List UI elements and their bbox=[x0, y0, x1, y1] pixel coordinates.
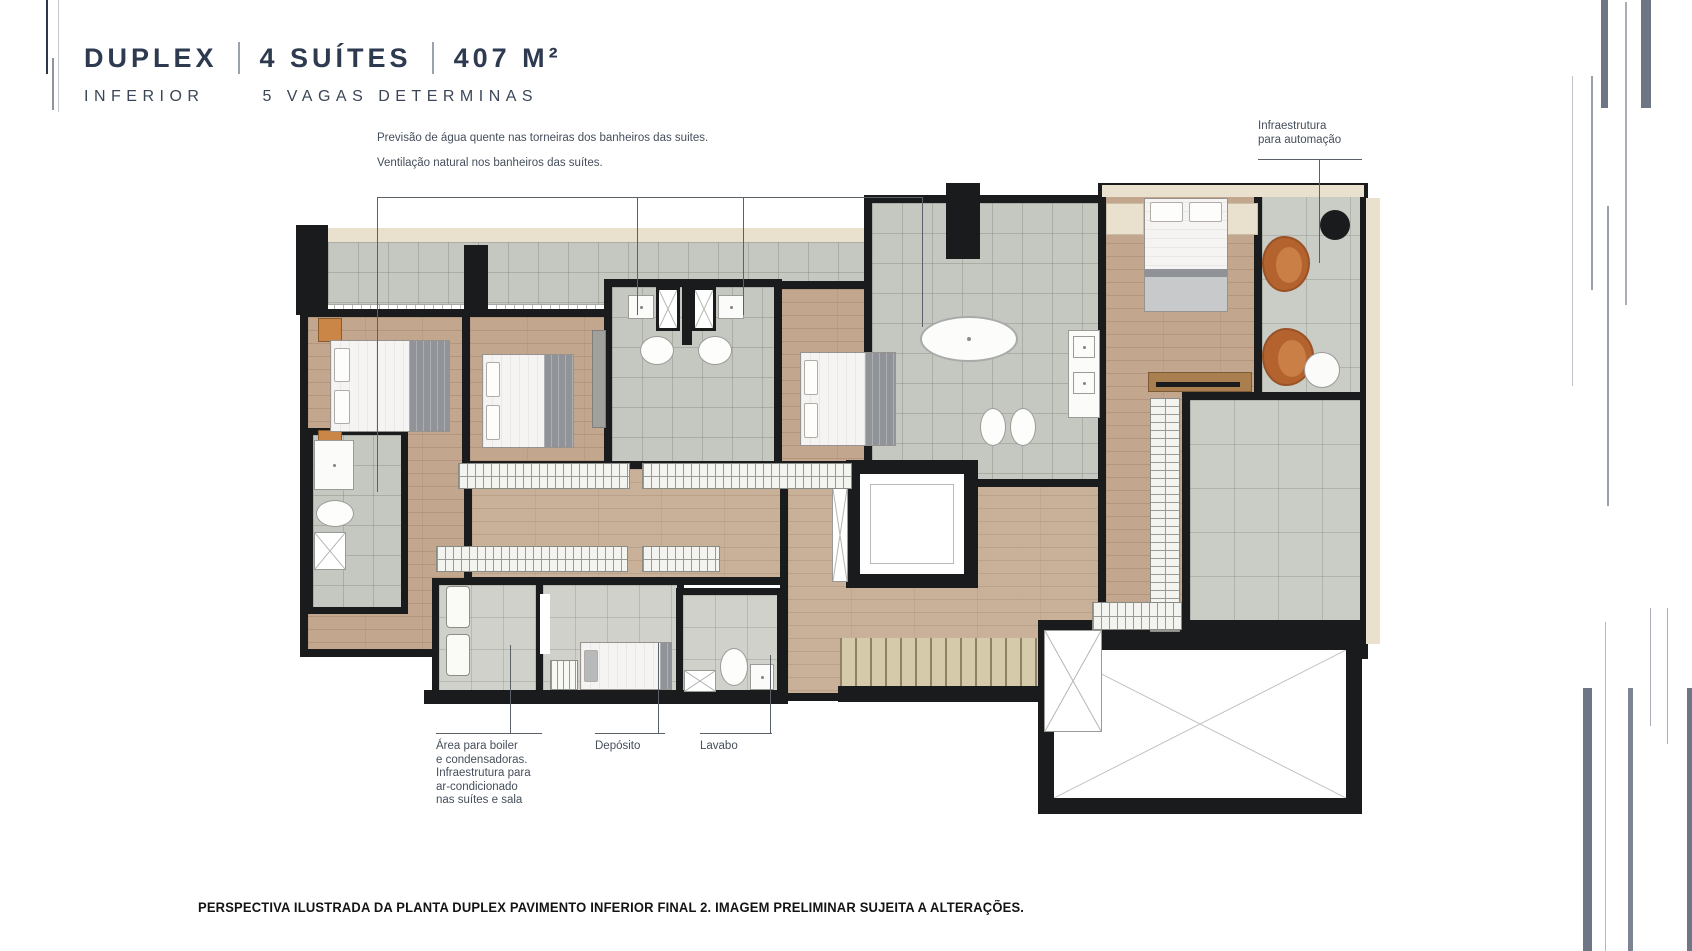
desk bbox=[592, 330, 606, 428]
toilet bbox=[720, 648, 748, 686]
right-accent-bar bbox=[1650, 608, 1651, 726]
callout-bracket-top bbox=[377, 197, 923, 198]
bed-blanket bbox=[544, 355, 573, 447]
annotation-boiler-line: Infraestrutura para bbox=[436, 767, 531, 781]
closet bbox=[1150, 398, 1180, 632]
bathroom-divider-wall bbox=[682, 279, 692, 345]
callout-underline bbox=[700, 733, 772, 734]
callout-line bbox=[377, 197, 378, 492]
door-gap bbox=[540, 594, 550, 654]
bathroom-sink bbox=[314, 440, 354, 490]
bed-blanket bbox=[660, 643, 671, 689]
annotation-lavabo: Lavabo bbox=[700, 740, 738, 752]
shower bbox=[314, 532, 346, 570]
callout-line bbox=[770, 655, 771, 733]
annotation-automation: Infraestrutura para automação bbox=[1258, 120, 1341, 147]
armchair-seat bbox=[1276, 247, 1302, 283]
round-table-white bbox=[1304, 352, 1340, 388]
bed-blanket bbox=[865, 353, 895, 445]
right-accent-bar bbox=[1625, 2, 1627, 305]
wall-stairs-bottom bbox=[838, 686, 1040, 702]
armchair-seat bbox=[1278, 340, 1306, 377]
left-accent-bar-2 bbox=[52, 58, 54, 110]
right-accent-bar bbox=[1687, 688, 1692, 951]
callout-line bbox=[510, 645, 511, 733]
bed-pillow bbox=[804, 360, 818, 395]
cross-icon bbox=[1045, 631, 1101, 731]
bathroom-sink bbox=[628, 295, 654, 319]
right-accent-bar bbox=[1667, 608, 1668, 744]
title-suites: 4 SUÍTES bbox=[260, 43, 412, 74]
annotation-deposito: Depósito bbox=[595, 740, 640, 752]
subtitle-parking: 5 VAGAS DETERMINAS bbox=[262, 88, 538, 106]
right-accent-bar bbox=[1572, 76, 1573, 386]
right-accent-bar bbox=[1601, 0, 1608, 108]
elevator-counterweight bbox=[832, 488, 848, 582]
annotation-boiler-line: e condensadoras. bbox=[436, 754, 531, 768]
round-table-black bbox=[1320, 210, 1350, 240]
bed-pillow bbox=[486, 362, 500, 397]
callout-line bbox=[743, 197, 744, 315]
bed-suite-3 bbox=[800, 352, 896, 446]
callout-underline bbox=[595, 733, 665, 734]
terrace-edge-right bbox=[1366, 198, 1380, 644]
annotation-automation-line1: Infraestrutura bbox=[1258, 120, 1341, 134]
bed-master bbox=[1144, 198, 1228, 312]
terrace-edge-top bbox=[1102, 185, 1364, 197]
bathroom-sink bbox=[1073, 336, 1095, 358]
bed-throw bbox=[1145, 269, 1227, 277]
elevator-cab-outline bbox=[870, 484, 954, 564]
staircase bbox=[840, 638, 1038, 686]
annotation-boiler-line: nas suítes e sala bbox=[436, 794, 531, 808]
cross-icon bbox=[659, 290, 677, 328]
bed-pillow bbox=[804, 403, 818, 438]
tv bbox=[1156, 382, 1240, 387]
toilet bbox=[698, 336, 732, 365]
bathtub bbox=[920, 316, 1018, 362]
right-accent-bar bbox=[1607, 206, 1609, 506]
left-accent-bar-1 bbox=[46, 0, 48, 74]
title-area: 407 M² bbox=[454, 43, 562, 74]
service-shaft bbox=[1044, 630, 1102, 732]
callout-underline bbox=[436, 733, 542, 734]
title-divider bbox=[432, 42, 434, 74]
bed-suite-1 bbox=[330, 340, 450, 432]
bed-pillow bbox=[334, 390, 350, 424]
cross-icon bbox=[695, 290, 713, 328]
shower bbox=[656, 287, 680, 331]
headboard-shelf bbox=[1226, 203, 1258, 235]
shower bbox=[692, 287, 716, 331]
shower bbox=[684, 670, 716, 692]
subtitle-floor: INFERIOR bbox=[84, 88, 204, 106]
annotation-hot-water: Previsão de água quente nas torneiras do… bbox=[377, 132, 708, 144]
right-accent-bar bbox=[1605, 622, 1606, 951]
closet bbox=[1092, 602, 1182, 630]
cross-icon bbox=[833, 489, 847, 581]
page-title: DUPLEX 4 SUÍTES 407 M² bbox=[84, 42, 562, 74]
callout-underline bbox=[1258, 159, 1362, 160]
right-accent-bar bbox=[1583, 688, 1592, 951]
wall-cap-left bbox=[296, 225, 328, 315]
boiler-unit bbox=[446, 586, 470, 628]
annotation-boiler-line: ar-condicionado bbox=[436, 781, 531, 795]
bed-pillow bbox=[1189, 202, 1222, 222]
bed-suite-2 bbox=[482, 354, 574, 448]
condenser-unit bbox=[446, 634, 470, 676]
wardrobe bbox=[436, 546, 628, 572]
title-duplex: DUPLEX bbox=[84, 43, 218, 74]
nightstand bbox=[318, 318, 342, 342]
bathroom-sink bbox=[718, 295, 744, 319]
toilet bbox=[980, 408, 1006, 446]
toilet bbox=[640, 336, 674, 365]
storage-rack bbox=[550, 660, 578, 690]
annotation-boiler-line: Área para boiler bbox=[436, 740, 531, 754]
annotation-automation-line2: para automação bbox=[1258, 134, 1341, 148]
wardrobe bbox=[642, 463, 852, 489]
cross-icon bbox=[685, 671, 715, 691]
bed-pillow bbox=[584, 650, 598, 682]
page-subtitle: INFERIOR 5 VAGAS DETERMINAS bbox=[84, 88, 538, 106]
title-divider bbox=[238, 42, 240, 74]
callout-line bbox=[637, 197, 638, 315]
right-accent-bar bbox=[1628, 688, 1633, 951]
right-accent-bar bbox=[1641, 0, 1651, 108]
headboard-shelf bbox=[1106, 203, 1144, 235]
callout-line bbox=[658, 643, 659, 733]
bed-blanket bbox=[1145, 273, 1227, 311]
left-accent-bar-3 bbox=[58, 0, 59, 112]
wall-service-bottom bbox=[424, 690, 788, 704]
wardrobe bbox=[458, 463, 630, 489]
room-terrace-lower bbox=[1182, 392, 1368, 642]
drain-dot bbox=[967, 337, 971, 341]
callout-line bbox=[1319, 159, 1320, 263]
bed-pillow bbox=[486, 405, 500, 440]
wall-column-master bbox=[946, 183, 980, 259]
disclaimer-caption: PERSPECTIVA ILUSTRADA DA PLANTA DUPLEX P… bbox=[198, 900, 1024, 915]
bathroom-sink bbox=[1073, 372, 1095, 394]
cross-icon bbox=[315, 533, 345, 569]
bidet bbox=[1010, 408, 1036, 446]
bed-blanket bbox=[409, 341, 449, 431]
page: DUPLEX 4 SUÍTES 407 M² INFERIOR 5 VAGAS … bbox=[0, 0, 1692, 951]
right-accent-bar bbox=[1591, 76, 1593, 290]
toilet bbox=[316, 500, 354, 527]
callout-line bbox=[922, 197, 923, 327]
bed-pillow bbox=[334, 348, 350, 382]
bed-pillow bbox=[1150, 202, 1183, 222]
annotation-boiler: Área para boiler e condensadoras. Infrae… bbox=[436, 740, 531, 808]
annotation-ventilation: Ventilação natural nos banheiros das suí… bbox=[377, 157, 603, 169]
wardrobe bbox=[642, 546, 720, 572]
